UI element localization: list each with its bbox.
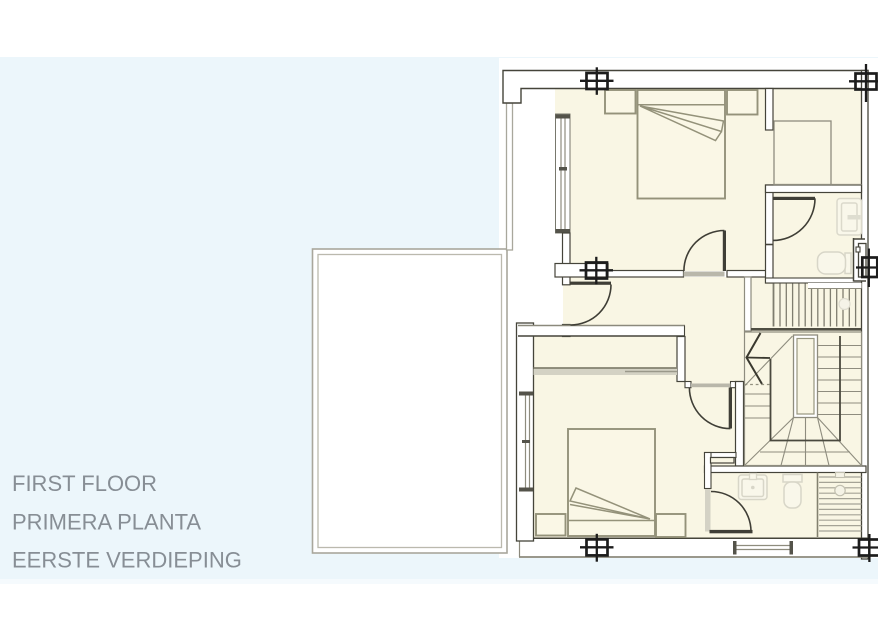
- svg-text:FIRST FLOOR: FIRST FLOOR: [12, 471, 157, 496]
- svg-text:EERSTE VERDIEPING: EERSTE VERDIEPING: [12, 547, 242, 572]
- svg-text:PRIMERA PLANTA: PRIMERA PLANTA: [12, 509, 201, 534]
